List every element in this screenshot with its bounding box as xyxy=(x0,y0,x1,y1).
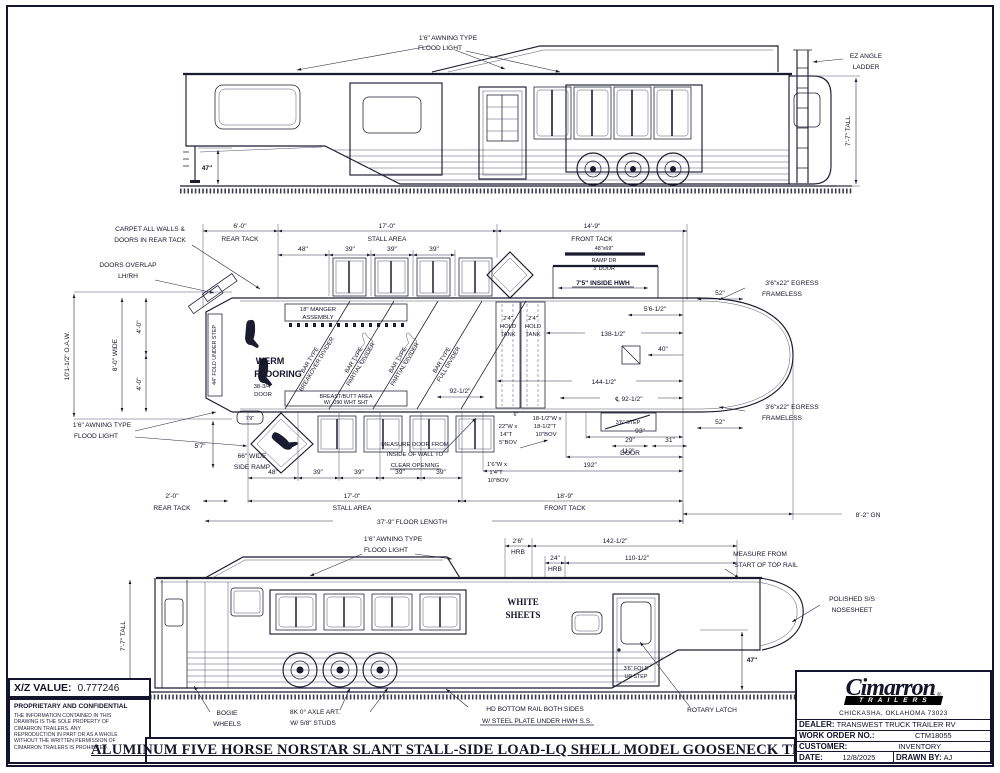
bogie-label-2: WHEELS xyxy=(213,721,241,728)
dim-14212: 142-1/2" xyxy=(603,538,628,545)
bov-a1: 22"W x xyxy=(499,424,518,430)
dim-9212: 92-1/2" xyxy=(449,388,471,395)
doors-overlap-1: DOORS OVERLAP xyxy=(99,262,157,269)
bogie-label-1: BOGIE xyxy=(217,710,238,717)
werm-flooring-1: WERM xyxy=(256,356,285,366)
measure-top-rail-1: MEASURE FROM xyxy=(733,551,787,558)
bov-b2: 18-1/2"T xyxy=(534,424,557,430)
title-block: Cimarron ® TRAILERS CHICKASHA, OKLAHOMA … xyxy=(795,670,992,764)
ramp-door-size: 48"x69" xyxy=(595,246,614,252)
sp-bot-39c: 39" xyxy=(395,469,405,476)
dealer-row: DEALER: TRANSWEST TRUCK TRAILER RV xyxy=(797,719,990,730)
xz-value-box: X/Z VALUE: 0.777246 xyxy=(8,678,151,698)
ramp-door-label: RAMP DR xyxy=(592,258,617,264)
work-order-label: WORK ORDER NO.: xyxy=(797,731,877,740)
egress-bot-label: 3'6"x22" EGRESS xyxy=(765,404,819,411)
fold-under-step: 44" FOLD UNDER STEP xyxy=(212,325,218,385)
top-flood-light-label2: FLOOD LIGHT xyxy=(418,45,462,52)
top-view-elevation: 7'-7" TALL 47" 1'6" AWNING TYPE FLOOD LI… xyxy=(180,35,883,191)
sp-bot-39d: 39" xyxy=(436,469,446,476)
bov-c2: 1'4"T xyxy=(489,470,503,476)
measure-top-rail-2: START OF TOP RAIL xyxy=(734,562,798,569)
carpet-note-2: DOORS IN REAR TACK xyxy=(114,237,186,244)
brand-address: CHICKASHA, OKLAHOMA 73023 xyxy=(797,709,990,719)
dim-5612: 5'6-1/2" xyxy=(644,306,667,313)
dim-rear-tack-top: 6'-0" xyxy=(233,223,247,230)
measure-door-1: MEASURE DOOR FROM xyxy=(381,442,449,448)
dim-rear-tack-top-l: REAR TACK xyxy=(221,236,259,243)
side-view-elevation: 2'6" HRB 142-1/2" 24" HRB 110-1/2" MEASU… xyxy=(120,536,876,728)
drawn-by-value: AJ xyxy=(944,753,953,762)
drawing-canvas: 7'-7" TALL 47" 1'6" AWNING TYPE FLOOD LI… xyxy=(0,0,1000,773)
manger-label2: ASSEMBLY xyxy=(302,315,333,321)
plan-view: 6'-0" REAR TACK 17'-0" STALL AREA 14'-9"… xyxy=(64,223,881,526)
dim-sp-top-48: 48" xyxy=(298,246,308,253)
tank2-tank: TANK xyxy=(525,332,540,338)
butt-area-label2: W/ .090 WHT SHT xyxy=(324,400,369,406)
date-drawn-row: DATE: 12/8/2025 DRAWN BY: AJ xyxy=(797,751,990,762)
white-sheets-1: WHITE xyxy=(507,597,539,607)
dim-stall-top: 17'-0" xyxy=(379,223,396,230)
dealer-label: DEALER: xyxy=(797,720,837,729)
dim-gn: 8'-2" GN xyxy=(856,512,881,519)
work-order-value: CTM18055 xyxy=(915,731,952,740)
dim-8ft-wide: 8'-0" WIDE xyxy=(112,338,119,371)
axle-label-1: 8K 0° AXLE ART. xyxy=(290,708,340,716)
side-dim-47: 47" xyxy=(747,657,757,664)
dim-front-tack-top-l: FRONT TACK xyxy=(571,236,613,243)
door-3834: 38-3/4" xyxy=(254,384,273,390)
dim-11012: 110-1/2" xyxy=(625,555,650,562)
dim-front-tack-bot-l: FRONT TACK xyxy=(544,505,586,512)
dim-4ft-a: 4'-0" xyxy=(136,320,143,334)
side-dim-tall: 7'-7" TALL xyxy=(120,621,127,651)
bov-a3: 5"BOV xyxy=(499,440,517,446)
dim-hrb24: 24" xyxy=(550,555,560,562)
werm-flooring-2: FLOORING xyxy=(254,369,302,379)
customer-row: CUSTOMER: INVENTORY xyxy=(797,741,990,752)
dim-14412: 144-1/2" xyxy=(592,379,617,386)
ez-ladder-label2: LADDER xyxy=(853,64,880,71)
measure-door-2: INSIDE OF WALL TO xyxy=(387,452,444,458)
customer-label: CUSTOMER: xyxy=(797,742,849,751)
sp-bot-39b: 39" xyxy=(354,469,364,476)
fold-up-step-2: UP STEP xyxy=(625,674,648,680)
bov-a2: 14"T xyxy=(500,432,513,438)
dim-rear-tack-bot: 2'-0" xyxy=(165,493,179,500)
step-36-label: 3'6" STEP xyxy=(616,420,641,426)
door-3834-l: DOOR xyxy=(254,392,272,398)
tank2-size: 2'4" xyxy=(528,316,538,322)
hd-rail-label-1: HD BOTTOM RAIL BOTH SIDES xyxy=(486,706,584,713)
dim-52-bot: 52" xyxy=(715,419,725,426)
tank1-size: 2'4" xyxy=(503,316,513,322)
dim-oaw: 10'1-1/2" O.A.W. xyxy=(64,331,71,380)
dim-sp-top-39c: 39" xyxy=(429,246,439,253)
side-flood-light-2: FLOOD LIGHT xyxy=(364,547,408,554)
sp-bot-48: 48" xyxy=(268,469,278,476)
dim-stall-top-l: STALL AREA xyxy=(368,236,407,243)
dim-front-tack-top: 14'-9" xyxy=(584,223,601,230)
top-flood-light-label: 1'6" AWNING TYPE xyxy=(419,35,478,42)
drawn-by-cell: DRAWN BY: AJ xyxy=(893,752,990,762)
dim-40: 40" xyxy=(658,346,668,353)
dim-31: 31" xyxy=(665,437,675,444)
dim-floor-length: 37'-9" FLOOR LENGTH xyxy=(377,519,447,526)
dim-112: 112" xyxy=(622,448,636,455)
egress-top-label: 3'6"x22" EGRESS xyxy=(765,280,819,287)
dim-front-tack-bot: 18'-9" xyxy=(557,493,574,500)
dim-6: 6" xyxy=(514,412,519,418)
work-order-row: WORK ORDER NO.: CTM18055 xyxy=(797,730,990,741)
side-flood-light-1: 1'6" AWNING TYPE xyxy=(364,536,423,543)
axle-label-2: W/ 5/8" STUDS xyxy=(290,720,336,727)
dim-9212-cl: ℄ 92-1/2" xyxy=(614,396,643,403)
tank1-hold: HOLD xyxy=(500,324,516,330)
dim-top-height: 7'-7" TALL xyxy=(845,116,852,146)
bov-b1: 18-1/2"W x xyxy=(533,416,562,422)
nosesheet-label-2: NOSESHEET xyxy=(832,607,873,614)
dim-192: 192" xyxy=(583,462,597,469)
tank1-tank: TANK xyxy=(500,332,515,338)
date-label: DATE: xyxy=(797,753,825,762)
bov-b3: 10"BOV xyxy=(535,432,556,438)
dim-57: 5'7" xyxy=(195,443,207,450)
drawing-sheet: 7'-7" TALL 47" 1'6" AWNING TYPE FLOOD LI… xyxy=(0,0,1000,773)
white-sheets-2: SHEETS xyxy=(505,610,540,620)
dim-4ft-b: 4'-0" xyxy=(136,377,143,391)
side-ramp-label-1: 66" WIDE xyxy=(238,453,267,460)
tank2-hold: HOLD xyxy=(525,324,541,330)
xz-value: 0.777246 xyxy=(78,683,120,694)
egress-top-label2: FRAMELESS xyxy=(762,291,803,298)
dim-door29: 29" xyxy=(625,437,635,444)
customer-value: INVENTORY xyxy=(898,742,941,751)
egress-bot-label2: FRAMELESS xyxy=(762,415,803,422)
dim-hrb24-l: HRB xyxy=(548,566,563,573)
proprietary-title: PROPRIETARY AND CONFIDENTIAL xyxy=(14,703,145,710)
dim-inside-hwh: 7'5" INSIDE HWH xyxy=(576,280,630,287)
dim-hrb26: 2'6" xyxy=(513,538,525,545)
plan-flood-light-2: FLOOD LIGHT xyxy=(74,433,118,440)
xz-label: X/Z VALUE: xyxy=(14,682,72,694)
brand-sub: TRAILERS xyxy=(844,696,943,705)
fold-up-step-1: 3'6" FOLD xyxy=(624,666,649,672)
drawn-by-label: DRAWN BY: xyxy=(894,753,944,762)
dim-13812: 138-1/2" xyxy=(601,331,626,338)
bov-c3: 10"BOV xyxy=(487,478,508,484)
doors-overlap-2: LH/RH xyxy=(118,273,138,280)
hd-rail-label-2: W/ STEEL PLATE UNDER HWH S.S. xyxy=(482,718,592,725)
dim-stall-bot: 17'-0" xyxy=(344,493,361,500)
sp-bot-39a: 39" xyxy=(313,469,323,476)
drawing-title-text: ALUMINUM FIVE HORSE NORSTAR SLANT STALL-… xyxy=(91,742,850,759)
bov-c1: 1'6"W x xyxy=(487,462,507,468)
date-cell: DATE: 12/8/2025 xyxy=(797,752,893,762)
drawing-title: ALUMINUM FIVE HORSE NORSTAR SLANT STALL-… xyxy=(145,737,796,764)
dim-rear-tack-bot-l: REAR TACK xyxy=(153,505,191,512)
dim-gooseneck-47: 47" xyxy=(202,165,212,172)
dim-52-top: 52" xyxy=(715,290,725,297)
dim-sp-top-39b: 39" xyxy=(387,246,397,253)
ramp-door-3ft: 3' DOOR xyxy=(593,266,615,272)
dim-hrb26-l: HRB xyxy=(511,549,526,556)
cimarron-logo: Cimarron ® TRAILERS xyxy=(797,672,990,709)
dim-79: 79" xyxy=(246,416,255,422)
date-value: 12/8/2025 xyxy=(842,753,875,762)
side-ramp-label-2: SIDE RAMP xyxy=(234,464,271,471)
dim-sp-top-39a: 39" xyxy=(345,246,355,253)
dealer-value: TRANSWEST TRUCK TRAILER RV xyxy=(837,720,956,729)
dim-93: 93" xyxy=(635,428,645,435)
dim-stall-bot-l: STALL AREA xyxy=(333,505,372,512)
nosesheet-label-1: POLISHED S/S xyxy=(829,596,875,603)
carpet-note-1: CARPET ALL WALLS & xyxy=(115,226,185,233)
rotary-latch-label: ROTARY LATCH xyxy=(687,707,737,714)
plan-flood-light-1: 1'6" AWNING TYPE xyxy=(73,422,132,429)
ez-ladder-label: EZ ANGLE xyxy=(850,53,883,60)
manger-label: 18" MANGER xyxy=(300,307,336,313)
